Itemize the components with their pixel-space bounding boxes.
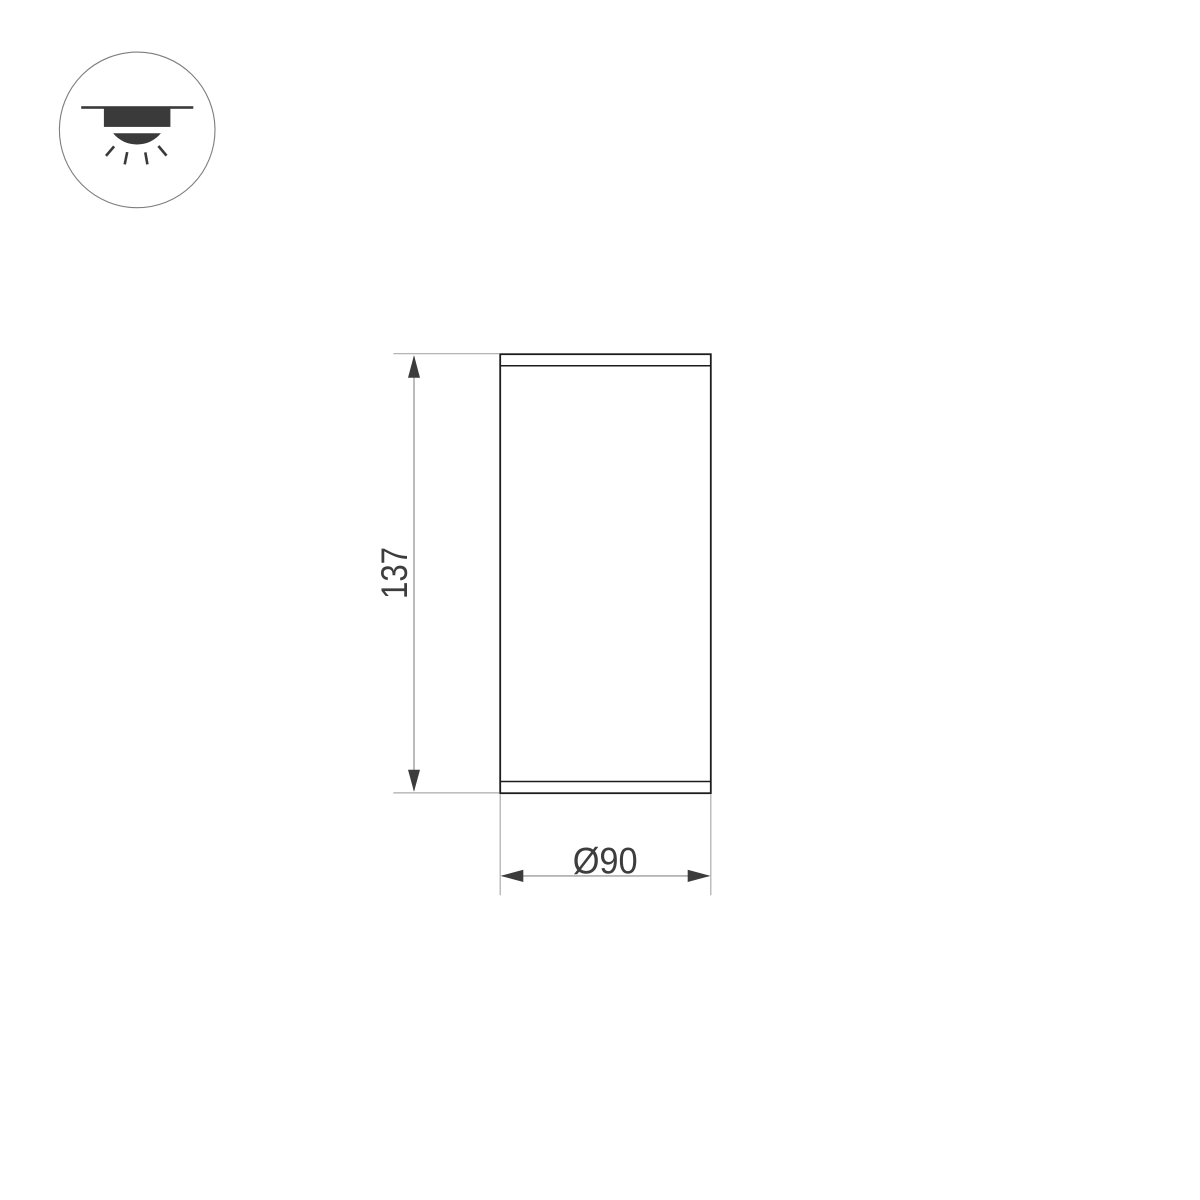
svg-text:137: 137 — [374, 547, 415, 599]
svg-text:Ø90: Ø90 — [573, 840, 638, 881]
